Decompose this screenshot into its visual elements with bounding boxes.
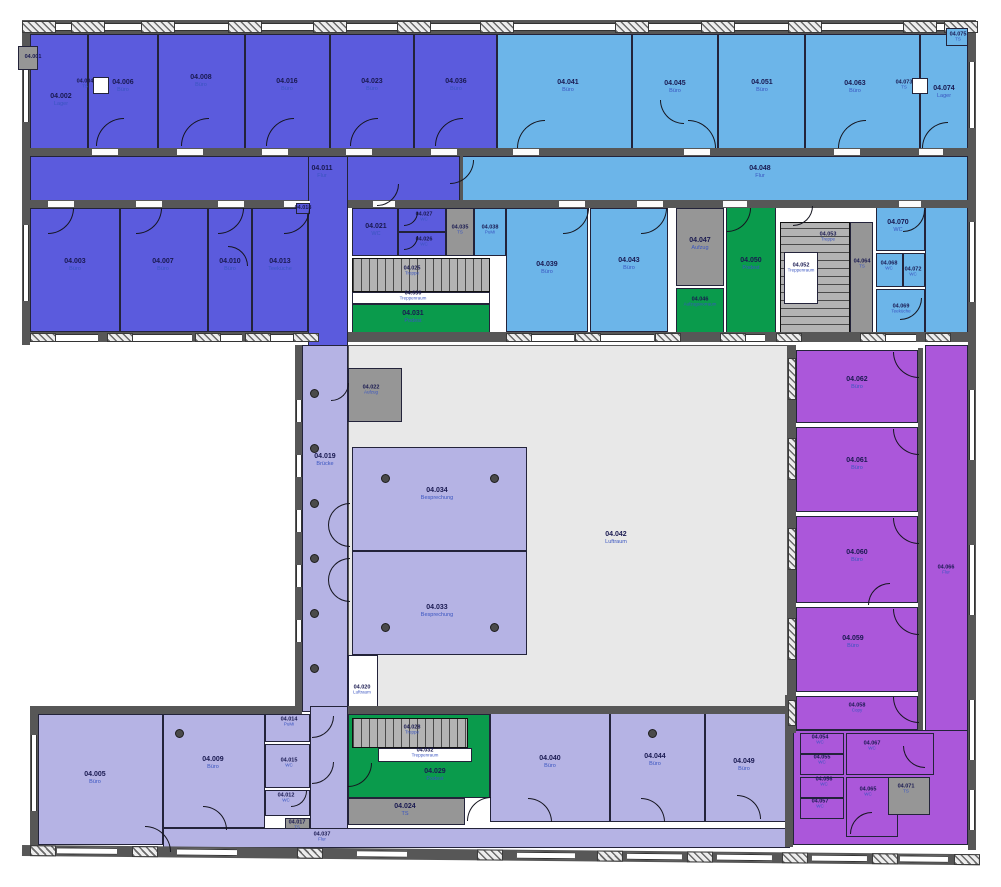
door-opening xyxy=(513,149,539,155)
wall-pier-hatch xyxy=(293,333,319,342)
door-opening xyxy=(431,149,457,155)
room-04-034 xyxy=(352,447,527,551)
window xyxy=(255,23,319,31)
window xyxy=(900,855,948,862)
door-opening xyxy=(136,201,162,207)
wall-pier-hatch xyxy=(597,851,623,862)
wall xyxy=(30,148,968,156)
window xyxy=(627,853,682,861)
wall-pier-hatch xyxy=(195,333,221,342)
wall-pier-hatch xyxy=(782,852,808,863)
room-04-052 xyxy=(784,252,818,304)
column-dot xyxy=(310,664,319,673)
window xyxy=(969,222,975,302)
door-opening xyxy=(834,149,860,155)
room-04-033 xyxy=(352,551,527,655)
room-04-040 xyxy=(490,710,610,822)
window xyxy=(730,23,794,31)
window xyxy=(296,510,302,532)
wall-pier-hatch xyxy=(30,845,56,856)
door-opening xyxy=(346,149,372,155)
room-04-032 xyxy=(378,748,472,762)
door-swing xyxy=(467,797,491,821)
room-04-003 xyxy=(30,208,120,332)
window xyxy=(296,455,302,477)
wall-pier-hatch xyxy=(477,849,503,860)
window xyxy=(168,23,234,31)
room-04-037 xyxy=(163,828,790,848)
window xyxy=(600,334,654,342)
wall-pier-hatch xyxy=(297,848,323,859)
column-dot xyxy=(648,729,657,738)
window xyxy=(510,23,618,31)
wall-pier-hatch xyxy=(903,21,937,33)
wall-pier-hatch xyxy=(860,333,886,342)
wall-pier-hatch xyxy=(788,528,796,570)
wall-pier-hatch xyxy=(480,21,514,33)
room-04-064 xyxy=(850,222,873,334)
room-04-072 xyxy=(903,253,925,287)
wall-pier-hatch xyxy=(107,333,133,342)
room-04-047 xyxy=(676,208,724,286)
wall-pier-hatch xyxy=(141,21,175,33)
column-dot xyxy=(381,623,390,632)
room-04-002 xyxy=(30,34,88,152)
door-opening xyxy=(262,149,288,155)
door-opening xyxy=(48,201,74,207)
room-04-022 xyxy=(348,368,402,422)
room-04-075 xyxy=(946,28,968,46)
room-04-015 xyxy=(265,744,310,788)
room-04-048 xyxy=(460,156,968,202)
window xyxy=(645,23,707,31)
window xyxy=(818,23,910,31)
wall-pier-hatch xyxy=(397,21,431,33)
door-opening xyxy=(919,149,943,155)
door-opening xyxy=(723,201,747,207)
room-04-031 xyxy=(352,304,490,334)
room-04-071 xyxy=(888,777,930,815)
column-dot xyxy=(310,499,319,508)
wall-pier-hatch xyxy=(788,21,822,33)
column-dot xyxy=(310,609,319,618)
wall-pier-hatch xyxy=(954,854,980,865)
wall-pier-hatch xyxy=(687,851,713,862)
wall-pier-hatch xyxy=(655,333,681,342)
room-04-057 xyxy=(800,798,844,819)
column-dot xyxy=(310,554,319,563)
wall-pier-hatch xyxy=(71,21,105,33)
wall-pier-hatch xyxy=(313,21,347,33)
door-opening xyxy=(559,201,585,207)
window xyxy=(340,23,402,31)
window xyxy=(969,790,975,830)
wall-pier-hatch xyxy=(701,21,735,33)
door-opening xyxy=(92,149,118,155)
room-04-054 xyxy=(800,733,844,754)
wall-pier-hatch xyxy=(788,618,796,660)
wall xyxy=(348,706,790,714)
door-opening xyxy=(684,149,710,155)
wall-pier-hatch xyxy=(575,333,601,342)
room-04-025 xyxy=(352,258,490,292)
wall-pier-hatch xyxy=(30,333,56,342)
wall-pier-hatch xyxy=(245,333,271,342)
wall-pier-hatch xyxy=(506,333,532,342)
wall-pier-hatch xyxy=(788,358,796,400)
window xyxy=(296,620,302,642)
wall-pier-hatch xyxy=(872,853,898,864)
room-04-073 xyxy=(912,78,928,94)
door-opening xyxy=(177,149,203,155)
room-04-020 xyxy=(348,655,378,712)
column-dot xyxy=(310,389,319,398)
room-04-038 xyxy=(474,208,506,256)
wall-pier-hatch xyxy=(788,438,796,480)
floor-area xyxy=(925,205,968,336)
window xyxy=(812,855,867,863)
window xyxy=(31,735,37,811)
window xyxy=(57,847,117,855)
room-04-001 xyxy=(18,46,38,70)
room-04-004 xyxy=(93,77,109,94)
column-dot xyxy=(490,474,499,483)
room-04-068 xyxy=(876,253,903,287)
column-dot xyxy=(490,623,499,632)
room-04-051 xyxy=(718,34,805,152)
window xyxy=(969,700,975,760)
door-opening xyxy=(899,201,921,207)
wall xyxy=(30,706,302,714)
door-opening xyxy=(218,201,244,207)
wall-pier-hatch xyxy=(925,333,951,342)
window xyxy=(969,390,975,460)
room-04-055 xyxy=(800,754,844,775)
wall-pier-hatch xyxy=(228,21,262,33)
window xyxy=(296,565,302,587)
wall-pier-hatch xyxy=(22,21,56,33)
window xyxy=(969,545,975,615)
room-04-021 xyxy=(352,208,398,256)
column-dot xyxy=(310,444,319,453)
room-04-030 xyxy=(352,292,490,304)
room-04-024 xyxy=(348,798,465,825)
room-04-028 xyxy=(352,718,468,748)
room-04-014 xyxy=(265,714,310,742)
window xyxy=(177,848,237,856)
window xyxy=(424,23,486,31)
window xyxy=(357,850,407,857)
room-04-046 xyxy=(676,288,724,336)
window xyxy=(132,334,192,342)
room-04-041 xyxy=(497,34,632,152)
window xyxy=(296,400,302,422)
floor-area xyxy=(308,156,348,348)
room-04-007 xyxy=(120,208,208,332)
room-04-056 xyxy=(800,777,844,798)
column-dot xyxy=(175,729,184,738)
window xyxy=(969,62,975,128)
door-opening xyxy=(637,201,663,207)
wall-pier-hatch xyxy=(776,333,802,342)
window xyxy=(23,225,29,301)
wall-pier-hatch xyxy=(720,333,746,342)
window xyxy=(517,852,575,860)
floor-plan: 04.00104.002Lager04.006Büro04.008Büro04.… xyxy=(0,0,1001,887)
column-dot xyxy=(381,474,390,483)
wall-pier-hatch xyxy=(615,21,649,33)
wall-pier-hatch xyxy=(788,700,796,726)
window xyxy=(717,854,772,862)
room-04-035 xyxy=(446,208,474,256)
